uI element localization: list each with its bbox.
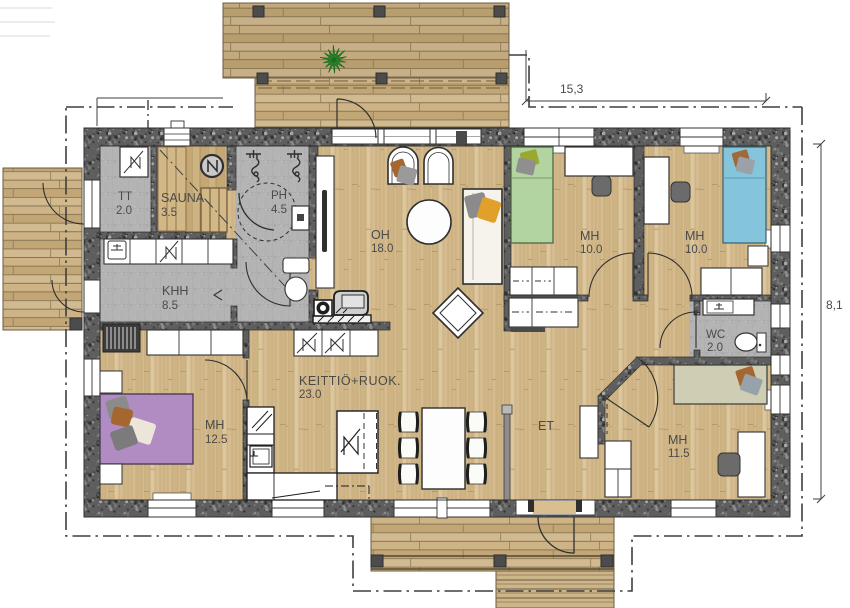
svg-text:MH: MH: [205, 418, 224, 432]
svg-text:2.0: 2.0: [116, 205, 132, 217]
svg-text:10.0: 10.0: [580, 244, 602, 256]
svg-text:12.5: 12.5: [205, 434, 227, 446]
svg-text:8.5: 8.5: [162, 300, 178, 312]
svg-text:MH: MH: [580, 229, 599, 243]
svg-text:OH: OH: [371, 228, 390, 242]
svg-text:4.5: 4.5: [271, 204, 287, 216]
svg-text:SAUNA: SAUNA: [161, 191, 205, 205]
svg-text:23.0: 23.0: [299, 389, 321, 401]
svg-text:KEITTIÖ+RUOK.: KEITTIÖ+RUOK.: [299, 374, 401, 388]
svg-text:15,3: 15,3: [560, 82, 584, 96]
svg-text:18.0: 18.0: [371, 243, 393, 255]
svg-text:10.0: 10.0: [685, 244, 707, 256]
svg-text:11.5: 11.5: [668, 448, 690, 460]
svg-text:8,1: 8,1: [826, 298, 843, 312]
svg-text:KHH: KHH: [162, 284, 188, 298]
svg-text:PH: PH: [271, 190, 287, 202]
svg-text:3.5: 3.5: [161, 207, 177, 219]
svg-text:ET: ET: [538, 419, 554, 433]
svg-text:TT: TT: [118, 191, 132, 203]
svg-text:MH: MH: [668, 433, 687, 447]
svg-text:WC: WC: [706, 329, 725, 341]
svg-text:MH: MH: [685, 229, 704, 243]
svg-text:2.0: 2.0: [707, 342, 723, 354]
